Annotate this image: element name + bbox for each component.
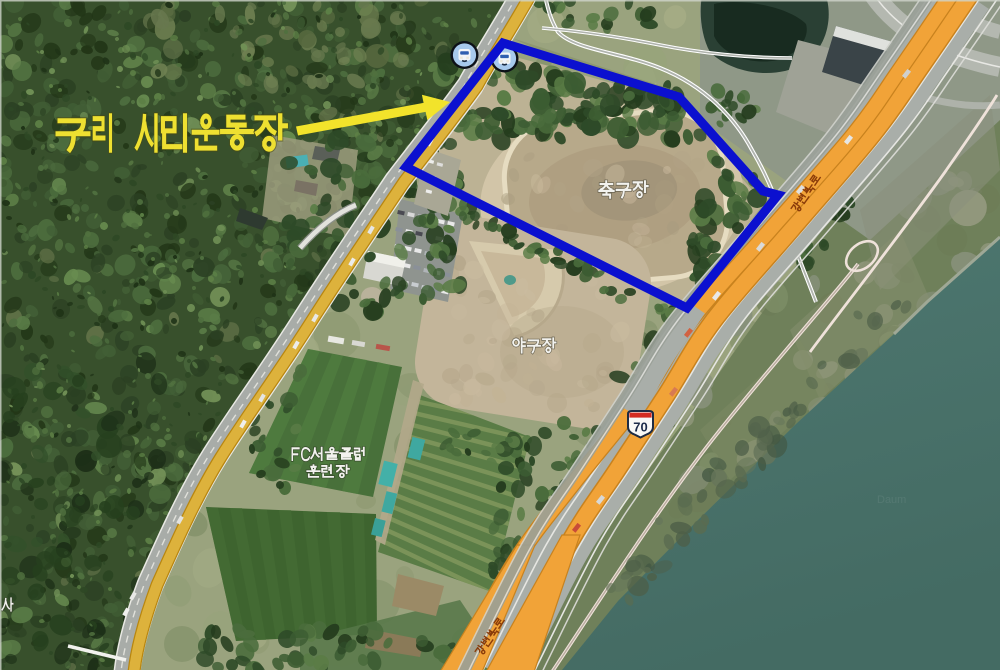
- svg-text:70: 70: [633, 420, 647, 435]
- svg-text:Daum: Daum: [877, 494, 906, 506]
